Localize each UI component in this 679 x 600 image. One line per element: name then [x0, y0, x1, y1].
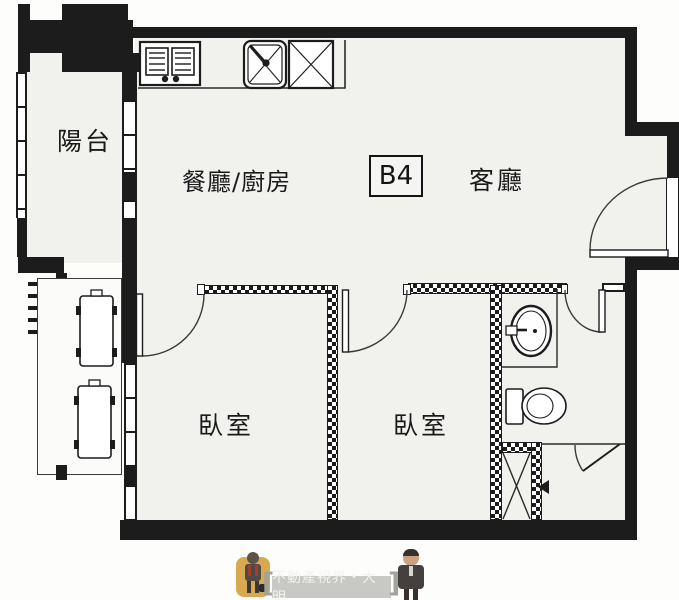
- label-bedroom2: 臥室: [393, 406, 449, 442]
- pipe-shaft-icon: [503, 453, 530, 519]
- bedroom2-door-leaf: [343, 290, 349, 352]
- label-bedroom1: 臥室: [198, 406, 254, 442]
- shaft-vent-marker: [538, 480, 549, 494]
- bathroom-door-arc: [565, 290, 602, 332]
- bathroom-sink-icon: [506, 306, 551, 356]
- label-balcony: 陽台: [57, 122, 113, 158]
- ac-unit-icon: [76, 290, 117, 366]
- unit-label-box: B4: [369, 155, 423, 197]
- bedroom1-door-arc: [143, 294, 205, 356]
- stove-icon: [140, 42, 200, 85]
- label-dining-kitchen: 餐廳/廚房: [182, 162, 291, 197]
- fixtures-layer: [0, 0, 679, 600]
- watermark-text: 不動產視界・大明: [272, 567, 391, 600]
- bathroom-door-leaf: [599, 290, 605, 332]
- entrance-door-arc: [590, 178, 668, 250]
- floor-plan: 陽台 餐廳/廚房 客廳 臥室 臥室 B4 [ 不動產視界・大明 ]: [0, 0, 679, 600]
- watermark-avatar-right: [394, 549, 428, 600]
- watermark-text-plate: 不動產視界・大明: [272, 576, 391, 598]
- bedroom2-door-arc: [349, 290, 408, 352]
- bedroom1-door-leaf: [137, 294, 143, 356]
- counter-x-unit-icon: [289, 41, 333, 88]
- toilet-icon: [506, 388, 566, 424]
- unit-label: B4: [379, 161, 413, 191]
- storage-door-arc: [575, 445, 583, 471]
- storage-door-leaf: [583, 444, 620, 471]
- ac-unit-icon: [74, 380, 115, 458]
- entrance-door-leaf: [590, 250, 668, 257]
- kitchen-sink-icon: [244, 41, 286, 88]
- label-living: 客廳: [469, 161, 525, 197]
